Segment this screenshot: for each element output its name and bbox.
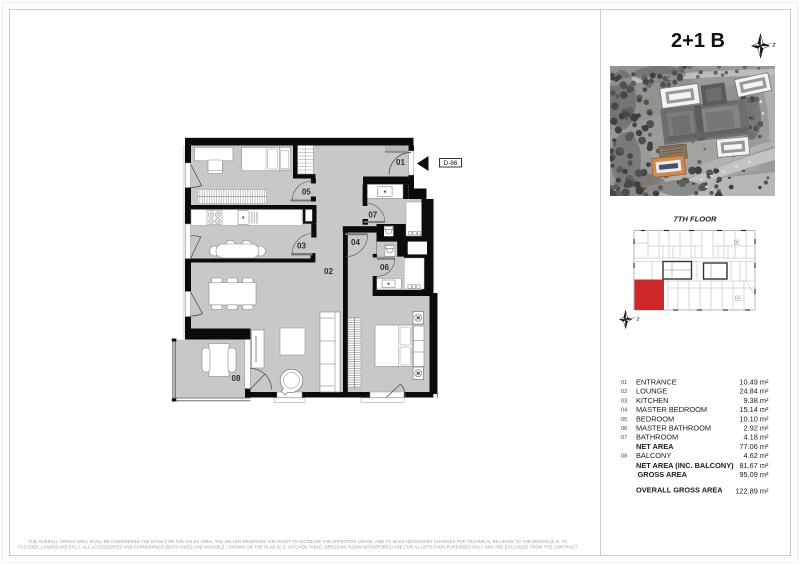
svg-text:03: 03 xyxy=(297,241,306,250)
svg-text:06: 06 xyxy=(380,263,389,272)
svg-text:4.62 m²: 4.62 m² xyxy=(743,451,769,460)
svg-text:03: 03 xyxy=(621,398,627,404)
svg-text:D-86: D-86 xyxy=(443,160,457,167)
svg-text:04: 04 xyxy=(351,238,360,247)
svg-text:NET AREA (INC. BALCONY): NET AREA (INC. BALCONY) xyxy=(636,461,734,470)
svg-text:10.49 m²: 10.49 m² xyxy=(739,378,769,387)
svg-text:4.18 m²: 4.18 m² xyxy=(743,433,769,442)
svg-text:06: 06 xyxy=(621,426,627,432)
svg-text:z: z xyxy=(772,43,776,49)
svg-text:05: 05 xyxy=(302,188,311,197)
svg-text:KITCHEN: KITCHEN xyxy=(636,396,668,405)
svg-text:81.67 m²: 81.67 m² xyxy=(739,461,769,470)
svg-text:MASTER BEDROOM: MASTER BEDROOM xyxy=(636,405,707,414)
svg-text:04: 04 xyxy=(621,408,627,414)
svg-text:ENTRANCE: ENTRANCE xyxy=(636,378,677,387)
svg-text:BEDROOM: BEDROOM xyxy=(636,414,674,423)
svg-text:OVERALL GROSS AREA: OVERALL GROSS AREA xyxy=(636,486,723,495)
svg-text:24.84 m²: 24.84 m² xyxy=(739,387,769,396)
svg-text:08: 08 xyxy=(232,374,241,383)
svg-text:THE OVERALL GROSS AREA SHALL B: THE OVERALL GROSS AREA SHALL BE CONSIDER… xyxy=(29,539,569,544)
svg-text:BATHROOM: BATHROOM xyxy=(636,433,678,442)
svg-text:08: 08 xyxy=(621,454,627,460)
svg-text:NET AREA: NET AREA xyxy=(636,442,674,451)
svg-text:FACADES, LANDSCAPE ETC.). ALL: FACADES, LANDSCAPE ETC.). ALL ACCESSORIE… xyxy=(18,545,578,550)
svg-text:LOUNGE: LOUNGE xyxy=(636,387,667,396)
svg-text:z: z xyxy=(636,317,640,323)
svg-text:02: 02 xyxy=(324,267,333,276)
svg-text:7TH FLOOR: 7TH FLOOR xyxy=(673,215,717,224)
svg-text:01: 01 xyxy=(621,380,627,386)
svg-text:GROSS AREA: GROSS AREA xyxy=(638,470,688,479)
svg-text:2.92 m²: 2.92 m² xyxy=(743,424,769,433)
svg-text:BALCONY: BALCONY xyxy=(636,451,671,460)
svg-text:07: 07 xyxy=(368,210,377,219)
svg-text:MASTER BATHROOM: MASTER BATHROOM xyxy=(636,424,711,433)
svg-text:07: 07 xyxy=(621,435,627,441)
svg-text:05: 05 xyxy=(621,417,627,423)
svg-text:02: 02 xyxy=(621,389,627,395)
svg-text:10.10 m²: 10.10 m² xyxy=(739,414,769,423)
svg-text:01: 01 xyxy=(396,158,405,167)
svg-text:122.89 m²: 122.89 m² xyxy=(735,487,769,496)
svg-text:15.14 m²: 15.14 m² xyxy=(739,405,769,414)
svg-text:77.06 m²: 77.06 m² xyxy=(739,442,769,451)
svg-text:9.38 m²: 9.38 m² xyxy=(743,396,769,405)
svg-text:2+1 B: 2+1 B xyxy=(671,30,725,52)
svg-text:95.09 m²: 95.09 m² xyxy=(739,470,769,479)
